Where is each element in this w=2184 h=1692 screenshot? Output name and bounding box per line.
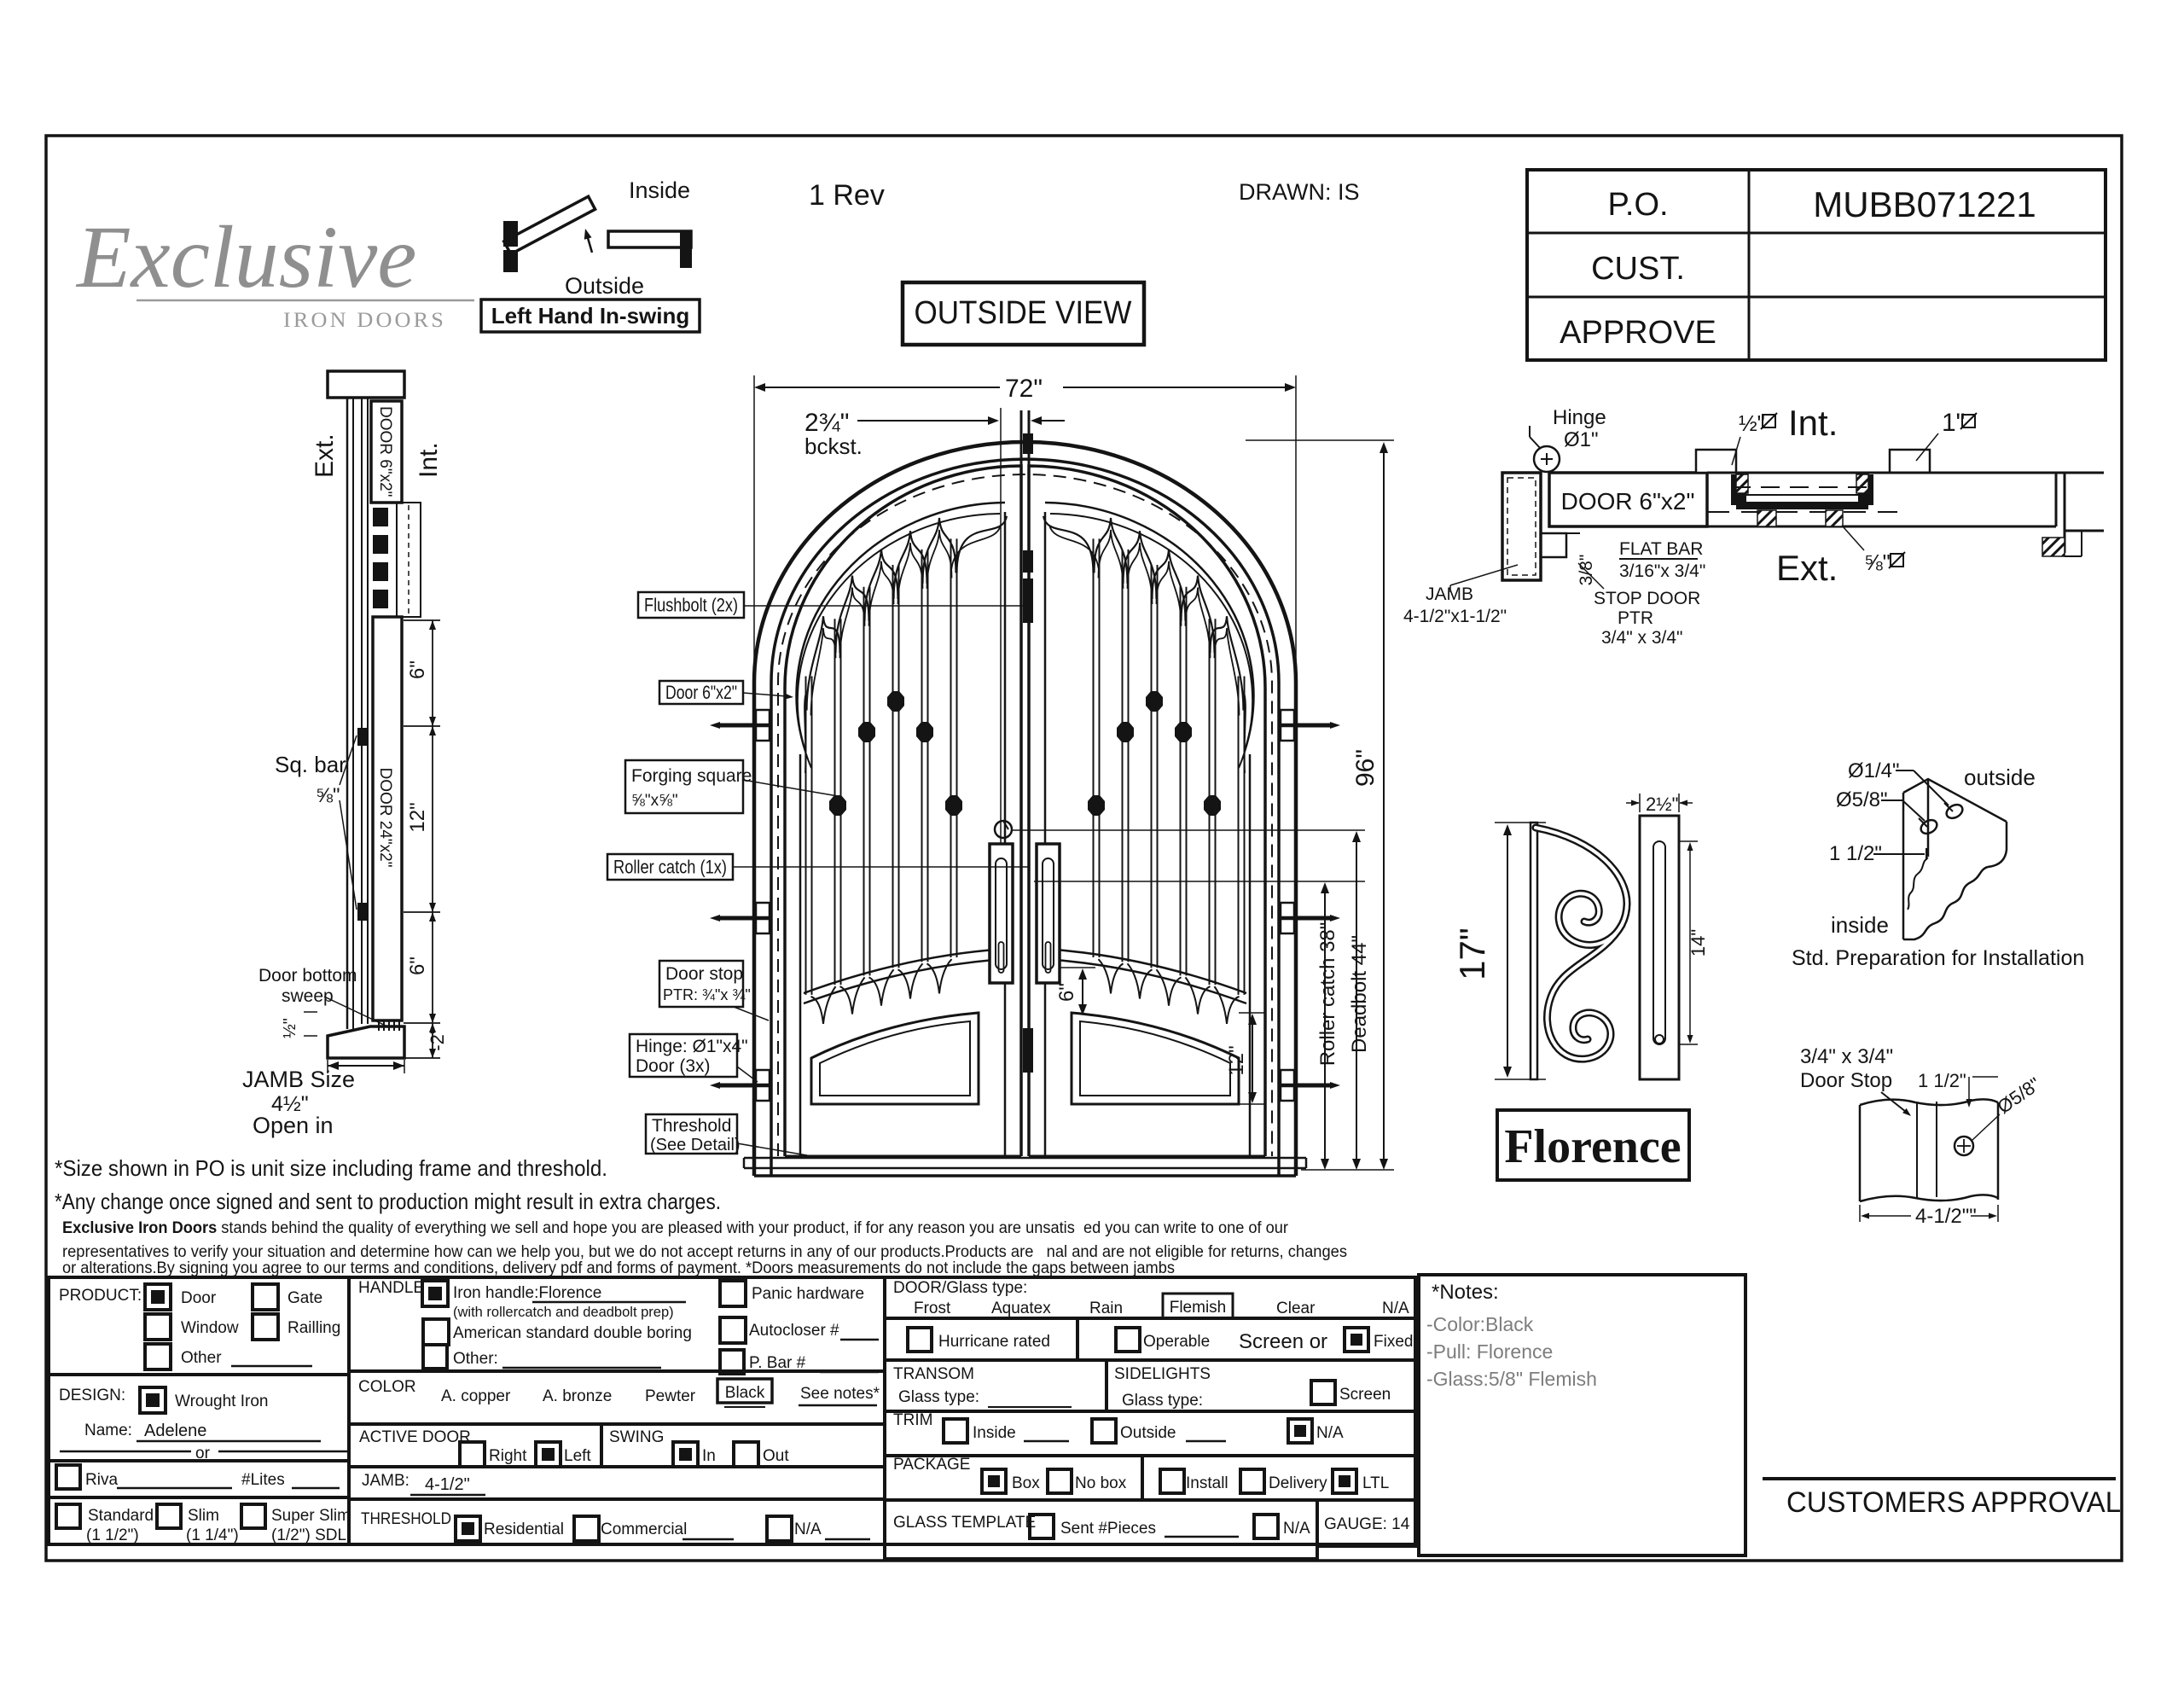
svg-text:Black: Black: [725, 1384, 765, 1402]
svg-text:Iron handle:Florence: Iron handle:Florence: [453, 1284, 601, 1302]
svg-text:96": 96": [1351, 749, 1380, 787]
svg-text:Screen: Screen: [1339, 1386, 1391, 1404]
svg-text:Fixed: Fixed: [1374, 1333, 1413, 1351]
svg-text:Sq. bar: Sq. bar: [275, 752, 346, 777]
svg-text:CUST.: CUST.: [1591, 251, 1685, 287]
svg-text:Outside: Outside: [1120, 1424, 1176, 1442]
svg-text:Door 6"x2": Door 6"x2": [665, 682, 737, 703]
svg-text:Ext.: Ext.: [1776, 548, 1838, 588]
svg-text:Commercial: Commercial: [601, 1520, 687, 1538]
svg-text:N/A: N/A: [794, 1520, 822, 1538]
svg-text:GAUGE: 14: GAUGE: 14: [1324, 1515, 1410, 1533]
svg-text:sweep: sweep: [282, 986, 334, 1006]
svg-text:*Notes:: *Notes:: [1432, 1281, 1499, 1304]
svg-text:4-1/2": 4-1/2": [425, 1475, 470, 1494]
svg-text:representatives to verify your: representatives to verify your situation…: [62, 1243, 1347, 1261]
svg-text:(1 1/4"): (1 1/4"): [186, 1526, 239, 1544]
svg-text:DOOR 24"x2": DOOR 24"x2": [376, 768, 394, 868]
svg-text:Super Slim: Super Slim: [271, 1507, 351, 1525]
svg-text:Name:: Name:: [84, 1422, 132, 1439]
svg-text:Autocloser #: Autocloser #: [749, 1322, 839, 1340]
svg-text:MUBB071221: MUBB071221: [1813, 184, 2036, 224]
svg-text:PTR: ¾"x ¾": PTR: ¾"x ¾": [663, 986, 751, 1003]
svg-text:Exclusive: Exclusive: [75, 208, 416, 306]
svg-text:Glass type:: Glass type:: [898, 1388, 979, 1406]
svg-text:In: In: [702, 1447, 716, 1465]
svg-text:JAMB Size: JAMB Size: [242, 1067, 355, 1092]
svg-text:Ø1/4": Ø1/4": [1848, 759, 1900, 782]
svg-text:1 Rev: 1 Rev: [809, 179, 885, 212]
svg-text:14": 14": [1687, 929, 1709, 956]
svg-text:Aquatex: Aquatex: [991, 1300, 1051, 1317]
svg-text:PACKAGE: PACKAGE: [893, 1456, 970, 1474]
svg-text:P. Bar #: P. Bar #: [749, 1354, 806, 1372]
svg-text:Sent #Pieces: Sent #Pieces: [1060, 1520, 1156, 1538]
svg-text:⅝": ⅝": [1864, 549, 1891, 575]
svg-text:DOOR/Glass type:: DOOR/Glass type:: [893, 1279, 1027, 1297]
svg-text:Exclusive Iron Doors stands be: Exclusive Iron Doors stands behind the q…: [62, 1219, 1289, 1237]
svg-text:SWING: SWING: [609, 1428, 664, 1446]
svg-text:OUTSIDE VIEW: OUTSIDE VIEW: [915, 295, 1132, 331]
svg-text:Open in: Open in: [253, 1113, 334, 1138]
svg-text:Door stop: Door stop: [665, 964, 743, 984]
svg-text:DOOR 6"x2": DOOR 6"x2": [1561, 488, 1695, 515]
svg-text:Other: Other: [181, 1349, 222, 1367]
svg-text:Left Hand In-swing: Left Hand In-swing: [491, 303, 690, 329]
svg-text:See notes*: See notes*: [800, 1385, 880, 1403]
svg-text:-Pull: Florence: -Pull: Florence: [1426, 1340, 1553, 1363]
svg-text:No box: No box: [1075, 1474, 1127, 1492]
svg-text:PTR: PTR: [1618, 608, 1653, 628]
svg-text:Clear: Clear: [1276, 1300, 1316, 1317]
svg-text:CUSTOMERS APPROVAL: CUSTOMERS APPROVAL: [1786, 1486, 2121, 1519]
svg-text:N/A: N/A: [1316, 1424, 1344, 1442]
svg-text:3/4" x 3/4": 3/4" x 3/4": [1800, 1045, 1893, 1068]
svg-text:Std. Preparation for Installat: Std. Preparation for Installation: [1792, 946, 2084, 970]
svg-text:or alterations.By signing you: or alterations.By signing you agree to o…: [62, 1259, 1175, 1277]
svg-text:COLOR: COLOR: [358, 1378, 416, 1396]
svg-text:Outside: Outside: [565, 273, 644, 299]
svg-text:DOOR 6"x2": DOOR 6"x2": [376, 406, 394, 497]
svg-text:DRAWN: IS: DRAWN: IS: [1239, 179, 1360, 205]
svg-text:Roller catch (1x): Roller catch (1x): [613, 857, 727, 878]
svg-text:GLASS TEMPLATE: GLASS TEMPLATE: [893, 1514, 1036, 1532]
svg-text:4-1/2"x1-1/2": 4-1/2"x1-1/2": [1403, 607, 1507, 626]
svg-text:-2": -2": [427, 1027, 448, 1050]
svg-text:Ext.: Ext.: [311, 433, 339, 478]
svg-text:6": 6": [406, 956, 429, 975]
svg-text:2½": 2½": [1646, 794, 1678, 815]
svg-text:ACTIVE DOOR: ACTIVE DOOR: [359, 1428, 471, 1446]
svg-text:Roller catch 38": Roller catch 38": [1316, 922, 1339, 1067]
svg-text:-Glass:5/8" Flemish: -Glass:5/8" Flemish: [1426, 1368, 1597, 1390]
svg-text:Forging square: Forging square: [631, 766, 752, 786]
svg-text:12": 12": [406, 802, 429, 832]
svg-text:12": 12": [1225, 1045, 1248, 1075]
svg-text:Int.: Int.: [1788, 403, 1838, 443]
svg-text:3/8": 3/8": [1577, 555, 1596, 586]
svg-text:72": 72": [1005, 375, 1043, 403]
svg-text:Hinge: Hinge: [1553, 406, 1606, 429]
svg-text:Gate: Gate: [288, 1289, 322, 1307]
svg-text:SIDELIGHTS: SIDELIGHTS: [1114, 1365, 1211, 1383]
svg-text:3/16"x 3/4": 3/16"x 3/4": [1619, 561, 1705, 581]
svg-text:N/A: N/A: [1382, 1300, 1409, 1317]
svg-text:PRODUCT:: PRODUCT:: [59, 1287, 142, 1305]
svg-text:IRON DOORS: IRON DOORS: [283, 309, 446, 332]
svg-text:JAMB:: JAMB:: [362, 1472, 409, 1490]
svg-text:(See Detail): (See Detail): [650, 1136, 741, 1154]
svg-text:Operable: Operable: [1143, 1333, 1210, 1351]
svg-text:⅝": ⅝": [316, 784, 340, 807]
svg-text:⅝"x⅝": ⅝"x⅝": [631, 792, 678, 810]
svg-text:1 1/2": 1 1/2": [1918, 1070, 1966, 1091]
svg-text:or: or: [195, 1445, 211, 1462]
svg-text:bckst.: bckst.: [804, 433, 863, 459]
svg-text:17": 17": [1452, 927, 1492, 980]
svg-text:(1 1/2"): (1 1/2"): [86, 1526, 139, 1544]
svg-text:Slim: Slim: [188, 1507, 219, 1525]
svg-text:Inside: Inside: [629, 177, 690, 203]
svg-text:Ø1": Ø1": [1564, 428, 1599, 451]
svg-text:JAMB: JAMB: [1426, 584, 1473, 604]
svg-text:(with rollercatch and deadbolt: (with rollercatch and deadbolt prep): [453, 1305, 674, 1320]
svg-text:6": 6": [406, 660, 429, 679]
svg-text:Florence: Florence: [1504, 1120, 1681, 1173]
svg-text:TRIM: TRIM: [893, 1411, 932, 1429]
svg-text:Ø5/8": Ø5/8": [1836, 788, 1888, 811]
svg-text:Box: Box: [1012, 1474, 1040, 1492]
svg-text:Hurricane rated: Hurricane rated: [938, 1333, 1050, 1351]
svg-text:Frost: Frost: [914, 1300, 951, 1317]
svg-text:Door bottom: Door bottom: [258, 966, 357, 986]
svg-text:Hinge: Ø1"x4": Hinge: Ø1"x4": [636, 1037, 748, 1056]
svg-text:Delivery: Delivery: [1269, 1474, 1327, 1492]
svg-text:Left: Left: [564, 1447, 591, 1465]
svg-text:½": ½": [1739, 410, 1765, 436]
svg-text:Install: Install: [1186, 1474, 1228, 1492]
svg-text:A. bronze: A. bronze: [543, 1387, 612, 1405]
svg-text:LTL: LTL: [1362, 1474, 1389, 1492]
svg-text:Int.: Int.: [415, 442, 443, 478]
svg-text:4-1/2"": 4-1/2"": [1915, 1205, 1977, 1228]
svg-text:A. copper: A. copper: [441, 1387, 511, 1405]
svg-text:#Lites: #Lites: [241, 1471, 285, 1489]
svg-text:Threshold: Threshold: [652, 1116, 731, 1136]
svg-text:Adelene: Adelene: [144, 1422, 206, 1440]
svg-text:*Size shown in PO is unit size: *Size shown in PO is unit size including…: [55, 1155, 607, 1181]
svg-text:Inside: Inside: [973, 1424, 1016, 1442]
svg-text:Railling: Railling: [288, 1319, 340, 1337]
svg-text:Riva: Riva: [85, 1471, 118, 1489]
svg-text:Right: Right: [489, 1447, 527, 1465]
svg-text:Wrought Iron: Wrought Iron: [175, 1393, 268, 1410]
svg-text:P.O.: P.O.: [1607, 187, 1668, 223]
svg-text:FLAT BAR: FLAT BAR: [1619, 539, 1703, 559]
svg-text:Rain: Rain: [1089, 1300, 1123, 1317]
svg-text:-Color:Black: -Color:Black: [1426, 1313, 1534, 1335]
svg-text:(1/2") SDL: (1/2") SDL: [271, 1526, 346, 1544]
svg-text:Glass type:: Glass type:: [1122, 1392, 1203, 1410]
svg-text:6": 6": [1055, 983, 1078, 1002]
svg-text:3/4" x 3/4": 3/4" x 3/4": [1601, 628, 1682, 648]
svg-text:½": ½": [281, 1018, 299, 1038]
svg-text:Other:: Other:: [453, 1350, 498, 1368]
svg-text:Door: Door: [181, 1289, 217, 1307]
svg-text:THRESHOLD: THRESHOLD: [361, 1510, 451, 1528]
svg-text:Door Stop: Door Stop: [1800, 1069, 1892, 1092]
svg-text:Flushbolt (2x): Flushbolt (2x): [644, 595, 738, 616]
svg-text:Window: Window: [181, 1319, 239, 1337]
svg-text:APPROVE: APPROVE: [1560, 315, 1716, 351]
svg-text:Screen or: Screen or: [1239, 1330, 1327, 1353]
svg-text:Pewter: Pewter: [645, 1387, 696, 1405]
svg-text:inside: inside: [1831, 912, 1889, 938]
svg-text:HANDLE: HANDLE: [358, 1279, 424, 1297]
svg-text:Flemish: Flemish: [1170, 1299, 1227, 1317]
svg-text:Door (3x): Door (3x): [636, 1056, 711, 1076]
svg-text:N/A: N/A: [1283, 1520, 1310, 1538]
svg-text:Panic hardware: Panic hardware: [752, 1285, 864, 1303]
svg-text:TRANSOM: TRANSOM: [893, 1365, 974, 1383]
svg-text:American standard double borin: American standard double boring: [453, 1324, 692, 1342]
svg-text:Standard: Standard: [88, 1507, 154, 1525]
svg-text:Residential: Residential: [484, 1520, 564, 1538]
svg-text:outside: outside: [1964, 765, 2036, 790]
svg-text:Out: Out: [763, 1447, 789, 1465]
svg-text:DESIGN:: DESIGN:: [59, 1387, 125, 1404]
svg-text:STOP DOOR: STOP DOOR: [1594, 589, 1700, 608]
svg-text:Deadbolt 44": Deadbolt 44": [1348, 935, 1371, 1053]
svg-text:*Any change once signed and se: *Any change once signed and sent to prod…: [55, 1189, 721, 1214]
